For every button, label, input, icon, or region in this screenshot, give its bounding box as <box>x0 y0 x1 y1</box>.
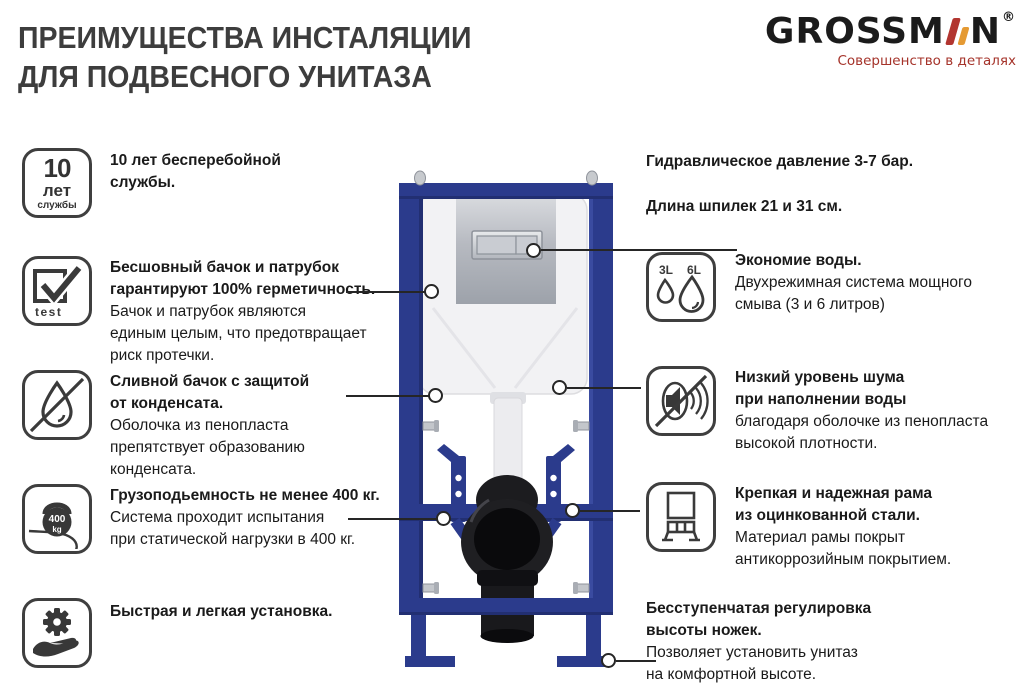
registered-trademark: ® <box>1002 11 1016 24</box>
text-line: единым целым, что предотвращает <box>110 323 402 345</box>
dual-flush-drops-icon: 3L 6L <box>646 252 716 322</box>
text-line: Позволяет установить унитаз <box>646 642 946 664</box>
text-line: смыва (3 и 6 литров) <box>735 294 1025 316</box>
callout-line-seamless-tank <box>346 291 426 293</box>
top-mounting-pins <box>415 171 598 185</box>
callout-line-steel-frame <box>580 510 640 512</box>
page-title: ПРЕИМУЩЕСТВА ИНСТАЛЯЦИИ ДЛЯ ПОДВЕСНОГО У… <box>18 18 472 96</box>
text-line: высокой плотности. <box>735 433 1032 455</box>
10-years-badge-icon: 10 лет службы <box>22 148 92 218</box>
callout-marker-flush-button <box>526 243 541 258</box>
easy-install-hand-gear-icon <box>22 598 92 668</box>
logo-text-end: N <box>970 14 1001 50</box>
text-line: при статической нагрузки в 400 кг. <box>110 529 402 551</box>
text-line: Бесшовный бачок и патрубок <box>110 257 402 279</box>
steel-frame-icon <box>646 482 716 552</box>
callout-marker-steel-frame <box>565 503 580 518</box>
callout-marker-seamless-tank <box>424 284 439 299</box>
feature-water-saving-text: Экономие воды. Двухрежимная система мощн… <box>735 250 1025 316</box>
text-line: из оцинкованной стали. <box>735 505 1032 527</box>
text-line: конденсата. <box>110 459 402 481</box>
text-line: Экономие воды. <box>735 250 1025 272</box>
feature-low-noise-text: Низкий уровень шумапри наполнении воды б… <box>735 367 1032 455</box>
text-line: Быстрая и легкая установка. <box>110 601 402 623</box>
spec-hydraulic-pressure: Гидравлическое давление 3-7 бар. <box>646 151 966 173</box>
text-line: гарантируют 100% герметичность. <box>110 279 402 301</box>
text-line: благодаря оболочке из пенопласта <box>735 411 1032 433</box>
no-condensation-drop-icon <box>22 370 92 440</box>
text-line: Крепкая и надежная рама <box>735 483 1032 505</box>
callout-line-low-noise <box>567 387 641 389</box>
text-line: Двухрежимная система мощного <box>735 272 1025 294</box>
no-noise-speaker-icon <box>646 366 716 436</box>
logo-orange-bar <box>957 27 969 45</box>
text-line: антикоррозийным покрытием. <box>735 549 1032 571</box>
text-line: Грузоподьемность не менее 400 кг. <box>110 485 402 507</box>
text-line: препятствует образованию <box>110 437 402 459</box>
logo-text-start: GROSSM <box>765 14 945 50</box>
feature-seamless-tank-text: Бесшовный бачок и патрубокгарантируют 10… <box>110 257 402 367</box>
text-line: при наполнении воды <box>735 389 1032 411</box>
text-line: на комфортной высоте. <box>646 664 946 686</box>
callout-marker-height-adjust <box>601 653 616 668</box>
callout-marker-condensation <box>428 388 443 403</box>
outlet-elbow-pipe <box>461 475 553 643</box>
tested-checkmark-icon: test <box>22 256 92 326</box>
10-years-badge-text: 10 лет службы <box>37 155 76 211</box>
spec-stud-length: Длина шпилек 21 и 31 см. <box>646 196 966 218</box>
text-line: высоты ножек. <box>646 620 946 642</box>
text-line: Оболочка из пенопласта <box>110 415 402 437</box>
title-line-1: ПРЕИМУЩЕСТВА ИНСТАЛЯЦИИ <box>18 18 472 57</box>
svg-text:test: test <box>35 305 62 319</box>
text-line: риск протечки. <box>110 345 402 367</box>
feature-10-years-text: 10 лет бесперебойнойслужбы. <box>110 150 402 194</box>
infographic-page: ПРЕИМУЩЕСТВА ИНСТАЛЯЦИИ ДЛЯ ПОДВЕСНОГО У… <box>0 0 1032 694</box>
svg-text:400: 400 <box>49 514 66 525</box>
logo-wordmark: GROSSM N ® <box>765 14 1016 50</box>
text-line: 10 лет бесперебойной <box>110 150 402 172</box>
text-line: службы. <box>110 172 402 194</box>
kettlebell-400kg-icon: 400 kg <box>22 484 92 554</box>
logo-tagline: Совершенство в деталях <box>765 53 1016 69</box>
callout-line-load-capacity <box>348 518 438 520</box>
svg-text:3L: 3L <box>659 263 673 277</box>
text-line: Материал рамы покрыт <box>735 527 1032 549</box>
title-line-2: ДЛЯ ПОДВЕСНОГО УНИТАЗА <box>18 57 472 96</box>
text-line: Бачок и патрубок являются <box>110 301 402 323</box>
logo-stylized-a-icon <box>945 14 970 48</box>
brand-logo: GROSSM N ® Совершенство в деталях <box>765 14 1016 69</box>
callout-line-condensation <box>346 395 430 397</box>
svg-text:6L: 6L <box>687 263 701 277</box>
callout-line-height-adjust <box>616 660 656 662</box>
feature-easy-install-text: Быстрая и легкая установка. <box>110 601 402 623</box>
text-line: Низкий уровень шума <box>735 367 1032 389</box>
feature-condensation-text: Сливной бачок с защитойот конденсата. Об… <box>110 371 402 481</box>
feature-steel-frame-text: Крепкая и надежная рамаиз оцинкованной с… <box>735 483 1032 571</box>
text-line: Сливной бачок с защитой <box>110 371 402 393</box>
callout-marker-low-noise <box>552 380 567 395</box>
svg-text:kg: kg <box>52 525 61 534</box>
text-line: Бесступенчатая регулировка <box>646 598 946 620</box>
feature-height-adjust-text: Бесступенчатая регулировкавысоты ножек. … <box>646 598 946 686</box>
callout-line-flush-button <box>541 249 737 251</box>
callout-marker-load-capacity <box>436 511 451 526</box>
